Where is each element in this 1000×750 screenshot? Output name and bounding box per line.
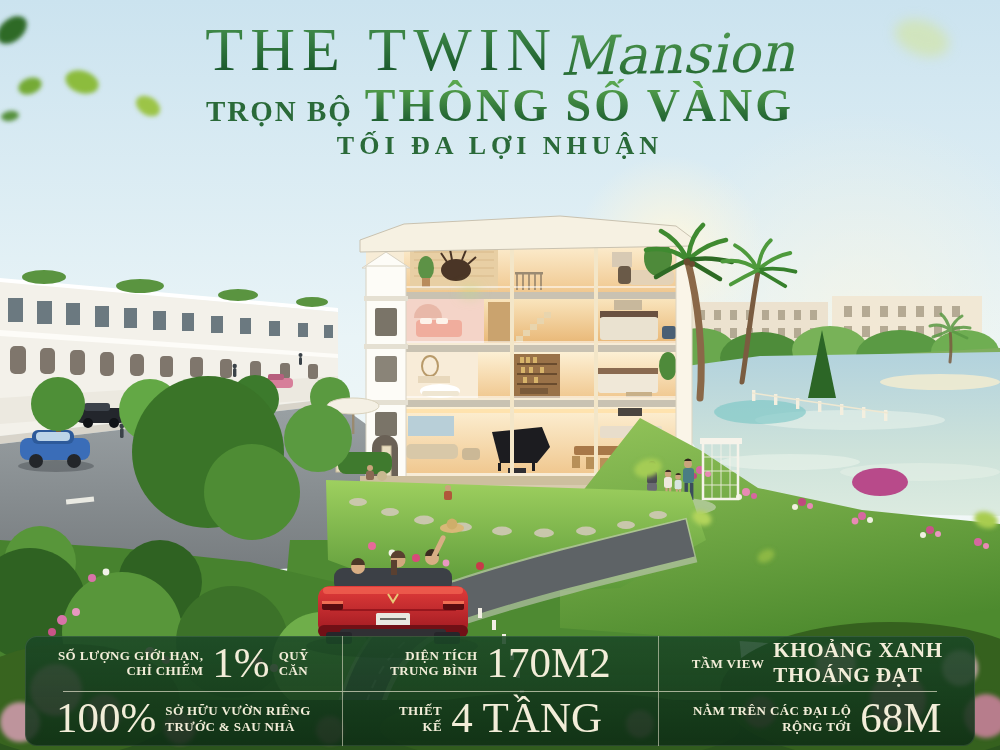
title-row: THE TWIN Mansion — [0, 14, 1000, 85]
stat-floors-label: THIẾT KẾ — [399, 703, 442, 734]
stats-panel: SỐ LƯỢNG GIỚI HẠN, CHỈ CHIẾM 1% QUỸ CĂN … — [25, 636, 975, 746]
stat-view-value: KHOẢNG XANH THOÁNG ĐẠT — [773, 638, 942, 688]
subtitle-row: TRỌN BỘ THÔNG SỐ VÀNG — [0, 79, 1000, 132]
stat-quota: SỐ LƯỢNG GIỚI HẠN, CHỈ CHIẾM 1% QUỸ CĂN — [25, 636, 342, 691]
stat-floors: THIẾT KẾ 4 TẦNG — [342, 692, 659, 747]
stat-quota-label: SỐ LƯỢNG GIỚI HẠN, CHỈ CHIẾM — [58, 648, 203, 679]
stat-boulevard-label: NẰM TRÊN CÁC ĐẠI LỘ RỘNG TỚI — [693, 703, 851, 734]
stat-area: DIỆN TÍCH TRUNG BÌNH 170M2 — [342, 636, 659, 691]
poster-header: THE TWIN Mansion TRỌN BỘ THÔNG SỐ VÀNG T… — [0, 14, 1000, 161]
stat-garden: 100% SỞ HỮU VƯỜN RIÊNG TRƯỚC & SAU NHÀ — [25, 692, 342, 747]
stat-boulevard: NẰM TRÊN CÁC ĐẠI LỘ RỘNG TỚI 68M — [658, 692, 975, 747]
stat-view-value-line1: KHOẢNG XANH — [773, 638, 942, 663]
stat-garden-suffix: SỞ HỮU VƯỜN RIÊNG TRƯỚC & SAU NHÀ — [165, 703, 310, 734]
stat-area-label-line1: DIỆN TÍCH — [390, 648, 477, 663]
stat-quota-label-line1: SỐ LƯỢNG GIỚI HẠN, — [58, 648, 203, 663]
stats-row-top: SỐ LƯỢNG GIỚI HẠN, CHỈ CHIẾM 1% QUỸ CĂN … — [25, 636, 975, 691]
stat-view-label-line1: TẦM VIEW — [692, 656, 765, 671]
stat-view-label: TẦM VIEW — [692, 656, 765, 671]
stat-boulevard-value: 68M — [860, 699, 941, 738]
stat-boulevard-label-line1: NẰM TRÊN CÁC ĐẠI LỘ — [693, 703, 851, 718]
poster-root: THE TWIN Mansion TRỌN BỘ THÔNG SỐ VÀNG T… — [0, 0, 1000, 750]
stat-area-label-line2: TRUNG BÌNH — [390, 663, 477, 678]
stats-row-bottom: 100% SỞ HỮU VƯỜN RIÊNG TRƯỚC & SAU NHÀ T… — [25, 692, 975, 747]
stat-floors-label-line1: THIẾT — [399, 703, 442, 718]
subtitle-prefix: TRỌN BỘ — [206, 95, 353, 128]
stat-garden-suffix-line1: SỞ HỮU VƯỜN RIÊNG — [165, 703, 310, 718]
subtitle-secondary: TỐI ĐA LỢI NHUẬN — [0, 131, 1000, 161]
stat-floors-value: 4 TẦNG — [451, 699, 602, 738]
stat-quota-suffix: QUỸ CĂN — [279, 648, 309, 679]
title-script: Mansion — [560, 21, 796, 88]
stat-view: TẦM VIEW KHOẢNG XANH THOÁNG ĐẠT — [658, 636, 975, 691]
stat-quota-suffix-line2: CĂN — [279, 663, 309, 678]
stat-quota-suffix-line1: QUỸ — [279, 648, 309, 663]
stat-area-label: DIỆN TÍCH TRUNG BÌNH — [390, 648, 477, 679]
stat-quota-value: 1% — [212, 644, 269, 683]
stat-garden-value: 100% — [56, 699, 156, 738]
stat-garden-suffix-line2: TRƯỚC & SAU NHÀ — [165, 719, 310, 734]
stat-quota-label-line2: CHỈ CHIẾM — [58, 663, 203, 678]
stat-boulevard-label-line2: RỘNG TỚI — [693, 719, 851, 734]
title-main: THE TWIN — [205, 14, 558, 85]
stat-view-value-line2: THOÁNG ĐẠT — [773, 663, 942, 688]
stat-floors-label-line2: KẾ — [399, 719, 442, 734]
stat-area-value: 170M2 — [487, 644, 611, 683]
